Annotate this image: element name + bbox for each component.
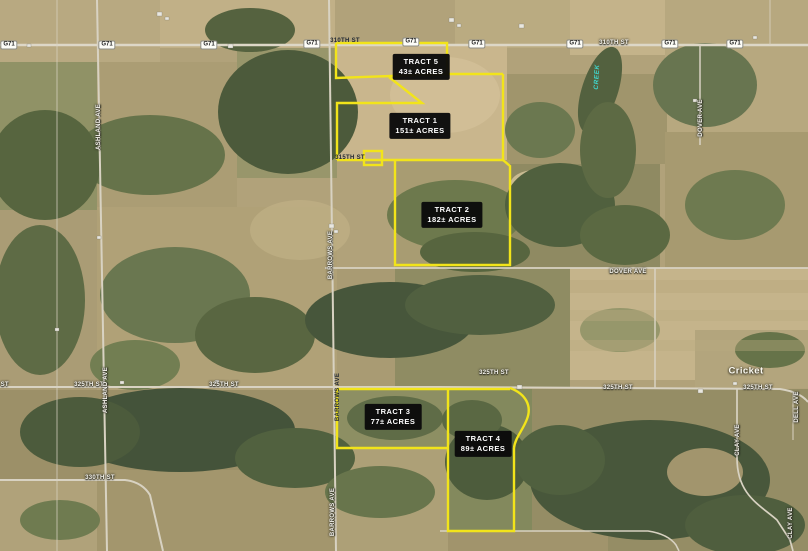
tract-3-label: TRACT 3 77± ACRES: [365, 404, 422, 430]
tract-5-acres: 43± ACRES: [399, 67, 444, 77]
road-labels-layer: 310TH ST310TH ST315TH STDOVER AVE325TH S…: [0, 0, 808, 551]
tract-4-acres: 89± ACRES: [461, 444, 506, 454]
tract-4-name: TRACT 4: [461, 434, 506, 444]
tract-3-acres: 77± ACRES: [371, 417, 416, 427]
street-label: 315TH ST: [335, 155, 365, 161]
route-shield-g71: G71: [468, 40, 485, 49]
street-label: 310TH ST: [330, 38, 360, 44]
route-shield-g71: G71: [303, 40, 320, 49]
tract-2-acres: 182± ACRES: [427, 215, 476, 225]
route-shield-g71: G71: [0, 41, 17, 50]
route-shield-g71: G71: [200, 41, 217, 50]
aerial-plat-map: 310TH ST310TH ST315TH STDOVER AVE325TH S…: [0, 0, 808, 551]
street-label: CLAY AVE: [788, 507, 794, 538]
creek-label: CREEK: [593, 64, 601, 90]
route-shield-g71: G71: [566, 40, 583, 49]
place-label-cricket: Cricket: [728, 366, 763, 377]
street-label: 325TH ST: [743, 385, 773, 391]
street-label: 325TH ST: [479, 370, 509, 376]
street-label: BARROWS AVE: [328, 231, 334, 279]
street-label: DOVER AVE: [609, 269, 646, 275]
tract-1-name: TRACT 1: [395, 116, 444, 126]
tract-1-label: TRACT 1 151± ACRES: [389, 113, 450, 139]
route-shield-g71: G71: [726, 40, 743, 49]
tract-3-name: TRACT 3: [371, 407, 416, 417]
street-label: 310TH ST: [599, 40, 629, 46]
street-label: 330TH ST: [85, 475, 115, 481]
street-label: DELL AVE: [794, 391, 800, 422]
street-label: BARROWS AVE: [335, 373, 341, 421]
tract-5-label: TRACT 5 43± ACRES: [393, 54, 450, 80]
street-label: DOVER AVE: [698, 99, 704, 136]
route-shield-g71: G71: [98, 41, 115, 50]
street-label: BARROWS AVE: [330, 488, 336, 536]
tract-2-name: TRACT 2: [427, 205, 476, 215]
route-shield-g71: G71: [661, 40, 678, 49]
street-label: 325TH ST: [74, 382, 104, 388]
tract-1-acres: 151± ACRES: [395, 126, 444, 136]
route-shield-g71: G71: [402, 38, 419, 47]
tract-4-label: TRACT 4 89± ACRES: [455, 431, 512, 457]
street-label: 325TH ST: [209, 382, 239, 388]
street-label: 325TH ST: [0, 382, 9, 388]
tract-2-label: TRACT 2 182± ACRES: [421, 202, 482, 228]
street-label: ASHLAND AVE: [103, 367, 109, 413]
street-label: CLAY AVE: [735, 424, 741, 455]
street-label: 325TH ST: [603, 385, 633, 391]
tract-5-name: TRACT 5: [399, 57, 444, 67]
street-label: ASHLAND AVE: [96, 104, 102, 150]
